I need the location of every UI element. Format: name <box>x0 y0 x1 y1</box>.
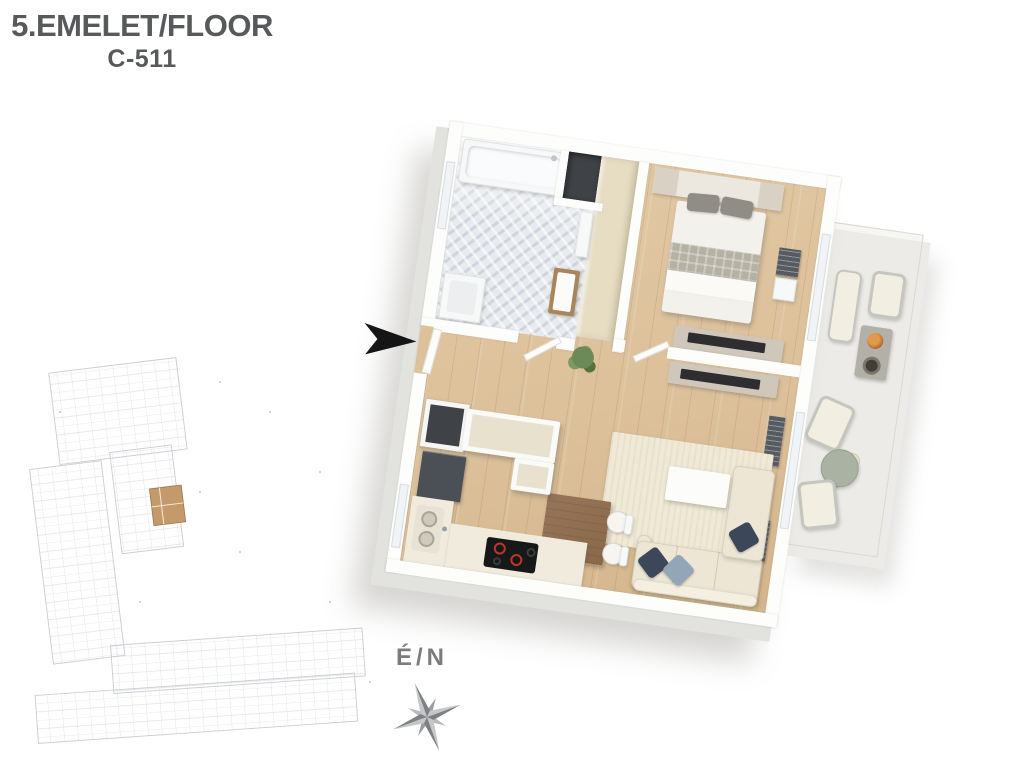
island-top <box>468 414 554 457</box>
balcony-armchair <box>867 270 907 320</box>
balcony-chaise-lounge <box>827 269 863 344</box>
fire-bowl <box>861 356 881 376</box>
plan-header: 5.EMELET/FLOOR C-511 <box>6 10 278 74</box>
compass-label: É/N <box>396 644 448 672</box>
site-plan-highlighted-unit <box>149 485 185 526</box>
sink-basin <box>417 530 435 548</box>
bedroom-bench <box>772 277 797 302</box>
compass-rose-icon <box>380 670 475 764</box>
vanity-basin <box>552 272 575 312</box>
kitchen-island-leg <box>510 458 554 495</box>
fridge <box>416 451 466 503</box>
washing-machine <box>438 272 486 324</box>
entrance-arrow-icon <box>360 317 419 364</box>
bed-pillow <box>686 193 719 214</box>
fire-table <box>854 325 893 381</box>
sink-faucet <box>442 526 448 532</box>
balcony-armchair <box>803 394 857 453</box>
floor-plan-3d <box>383 121 982 663</box>
burner-hot <box>510 553 524 567</box>
compass-cardinal-points <box>381 671 473 763</box>
floorplan-page: { "header": { "floor_label": "5.EMELET/F… <box>0 0 1013 760</box>
fire-bowl-flames <box>866 332 884 350</box>
floor-label: 5.EMELET/FLOOR <box>6 10 278 43</box>
kitchen-sink <box>411 504 445 554</box>
bedroom-living-wall <box>612 339 626 353</box>
apartment-unit <box>385 121 841 628</box>
building-site-plan <box>20 352 380 760</box>
burner <box>492 557 501 566</box>
plant-foliage <box>570 345 595 370</box>
burner <box>526 547 536 557</box>
balcony-armchair <box>797 479 840 531</box>
cooktop <box>483 537 539 574</box>
double-bed <box>661 200 766 324</box>
nightstand <box>652 167 679 196</box>
bedroom-radiator <box>776 247 802 278</box>
washer-door <box>446 280 478 316</box>
nightstand <box>757 182 784 211</box>
burner-hot <box>493 542 507 556</box>
site-plan-wings <box>30 358 366 744</box>
island-top <box>516 463 549 489</box>
unit-label: C-511 <box>6 45 278 74</box>
sink-basin <box>420 510 438 528</box>
bathtub-basin <box>464 145 562 190</box>
